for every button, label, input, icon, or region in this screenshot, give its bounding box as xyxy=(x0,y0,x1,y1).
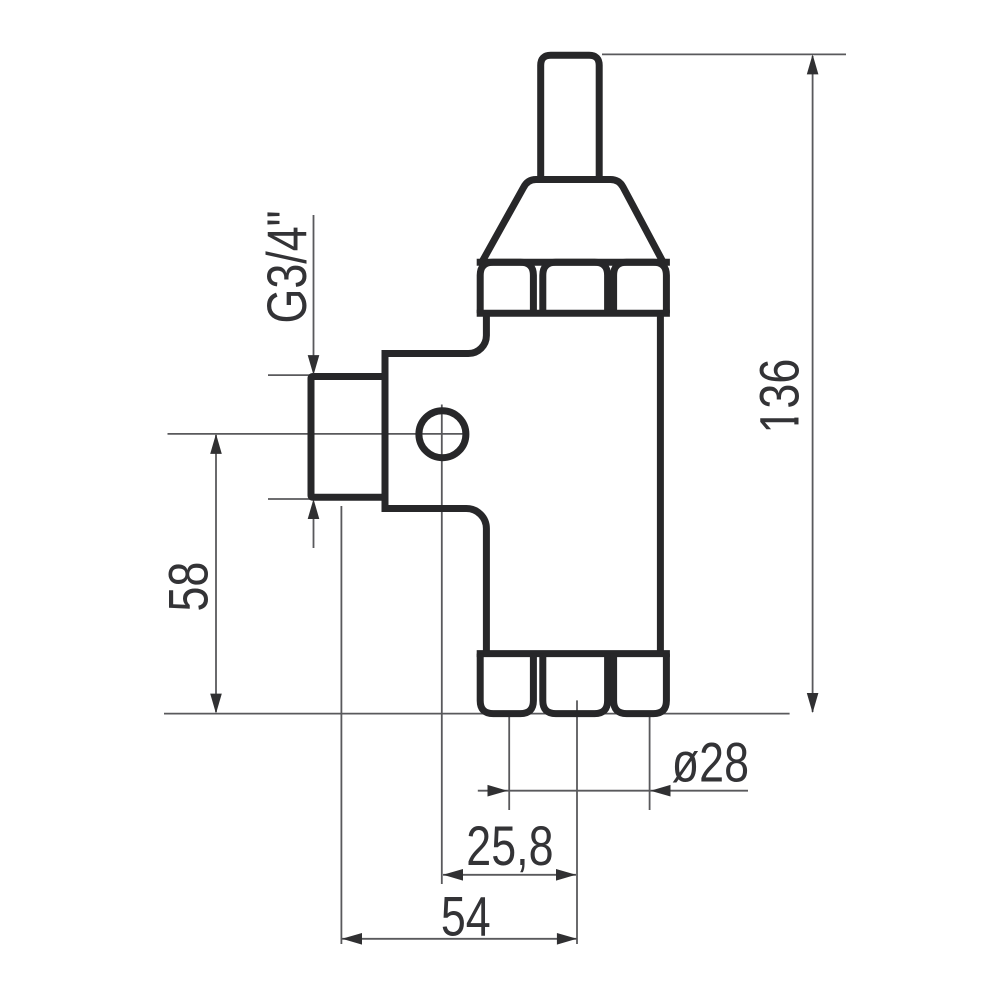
svg-text:G3/4": G3/4" xyxy=(255,210,318,323)
svg-text:136: 136 xyxy=(748,359,811,434)
svg-text:ø28: ø28 xyxy=(672,731,749,794)
svg-text:58: 58 xyxy=(157,562,220,612)
svg-text:54: 54 xyxy=(441,885,491,948)
svg-text:25,8: 25,8 xyxy=(466,814,553,877)
